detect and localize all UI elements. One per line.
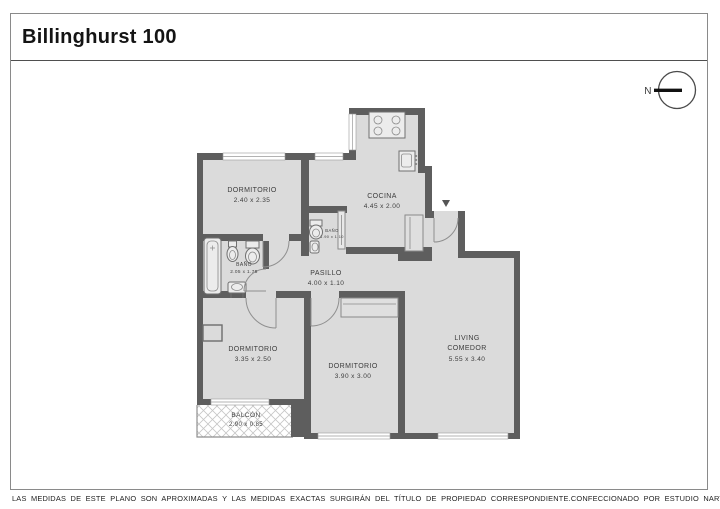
stove-icon	[369, 112, 405, 138]
room-dims-cocina: 4.45 x 2.00	[364, 203, 401, 210]
room-label-dormitorio1: DORMITORIO	[227, 187, 277, 194]
bedroom3-closet	[341, 298, 398, 317]
bidet-icon	[227, 241, 238, 262]
entry-marker-icon	[442, 200, 450, 207]
compass-north-label: N	[644, 86, 652, 97]
title-bar: Billinghurst 100	[11, 14, 707, 61]
room-dims-bano1: 2.05 x 1.75	[230, 269, 258, 274]
room-label-balcon: BALCÓN	[231, 410, 260, 419]
room-label-living2: COMEDOR	[447, 345, 486, 352]
bathroom2-door-leaf	[338, 211, 345, 249]
room-label-dormitorio2: DORMITORIO	[228, 346, 278, 353]
room-dims-pasillo: 4.00 x 1.10	[308, 280, 345, 287]
room-label-cocina: COCINA	[367, 193, 397, 200]
plan-frame: Billinghurst 100	[10, 13, 708, 490]
compass-icon: N	[644, 72, 695, 109]
bathtub-icon	[204, 238, 221, 294]
room-label-living: LIVING	[454, 335, 479, 342]
room-dims-living: 5.55 x 3.40	[449, 356, 486, 363]
room-label-dormitorio3: DORMITORIO	[328, 363, 378, 370]
room-dims-balcon: 2.90 x 0.85	[229, 422, 263, 428]
bedroom2-closet	[203, 325, 222, 341]
toilet-icon	[246, 241, 260, 264]
room-label-bano2: BAÑO	[325, 228, 339, 233]
footer-disclaimer: LAS MEDIDAS DE ESTE PLANO SON APROXIMADA…	[12, 494, 571, 503]
room-dims-dormitorio3: 3.90 x 3.00	[335, 373, 372, 380]
floor-plan: DORMITORIO 2.40 x 2.35 COCINA 4.45 x 2.0…	[11, 61, 709, 490]
room-label-pasillo: PASILLO	[310, 270, 342, 277]
room-label-bano1: BAÑO	[236, 261, 252, 268]
room-dims-bano2: 1.90 x 1.10	[320, 234, 344, 239]
footer-credit: CONFECCIONADO POR ESTUDIO NARTEX	[571, 494, 720, 503]
room-dims-dormitorio2: 3.35 x 2.50	[235, 356, 272, 363]
room-dims-dormitorio1: 2.40 x 2.35	[234, 197, 271, 204]
entry-closet	[405, 215, 423, 251]
balcony	[197, 405, 293, 437]
footer: LAS MEDIDAS DE ESTE PLANO SON APROXIMADA…	[12, 494, 708, 503]
bathroom2-sink-icon	[310, 241, 319, 253]
page-title: Billinghurst 100	[22, 26, 177, 49]
kitchen-sink-icon	[399, 151, 417, 171]
